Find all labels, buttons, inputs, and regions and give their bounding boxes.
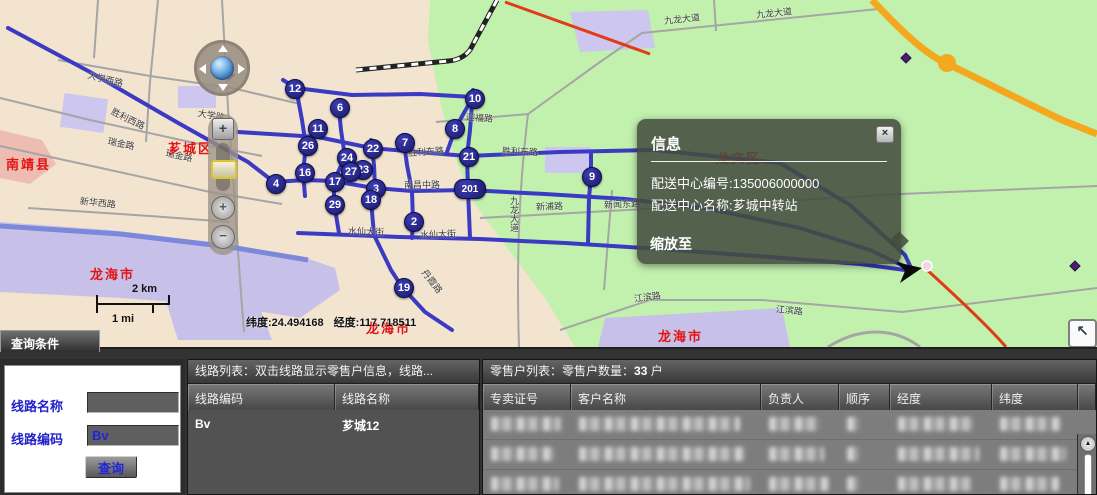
route-column-header: 线路名称 bbox=[335, 384, 479, 410]
redacted-cell bbox=[483, 410, 571, 439]
redacted-text-blob bbox=[847, 447, 859, 461]
delivery-center-name: 配送中心名称:芗城中转站 bbox=[651, 195, 798, 214]
retailer-column-header: 纬度 bbox=[992, 384, 1078, 410]
route-code-cell: Bv bbox=[188, 410, 335, 438]
app-window: 九龙大道九龙大道大学西路胜利西路大学路瑞金路瑞金路新华西路迎福路胜利东路胜利东路… bbox=[0, 0, 1097, 495]
redacted-text-blob bbox=[579, 477, 750, 491]
cursor-coordinates: 纬度:24.494168 经度:117.718511 bbox=[246, 314, 416, 330]
retailer-column-header: 顺序 bbox=[839, 384, 890, 410]
redacted-text-blob bbox=[491, 447, 554, 461]
query-form-section: 线路名称 线路编码 查询 bbox=[0, 359, 185, 495]
redacted-cell bbox=[571, 470, 761, 494]
redacted-text-blob bbox=[769, 447, 824, 461]
pan-east-button[interactable] bbox=[238, 64, 245, 74]
redacted-cell bbox=[839, 440, 890, 469]
route-column-header: 线路编码 bbox=[188, 384, 335, 410]
redacted-cell bbox=[839, 410, 890, 439]
redacted-text-blob bbox=[769, 477, 829, 491]
redacted-cell bbox=[890, 470, 992, 494]
bottom-panel: 线路名称 线路编码 查询 线路列表：双击线路显示零售户信息，线路... 线路编码… bbox=[0, 347, 1097, 495]
redacted-text-blob bbox=[898, 447, 979, 461]
redacted-text-blob bbox=[1000, 477, 1059, 491]
redacted-cell bbox=[761, 440, 839, 469]
redacted-cell bbox=[761, 470, 839, 494]
delivery-center-code: 配送中心编号:135006000000 bbox=[651, 173, 819, 192]
info-popup-title: 信息 bbox=[651, 133, 681, 154]
retailer-title-prefix: 零售户列表：零售户数量： bbox=[490, 364, 634, 378]
pan-south-button[interactable] bbox=[218, 84, 228, 91]
district-label: 芗城区 bbox=[168, 138, 213, 157]
scrollbar-thumb[interactable] bbox=[1084, 454, 1092, 494]
retailer-table-header: 专卖证号客户名称负责人顺序经度纬度 bbox=[483, 384, 1096, 410]
redacted-text-blob bbox=[898, 417, 974, 431]
retailer-column-header: 专卖证号 bbox=[483, 384, 571, 410]
route-stop-marker-2[interactable]: 2 bbox=[404, 212, 424, 232]
expand-arrow-button[interactable]: ↖ bbox=[1068, 319, 1097, 347]
map-canvas[interactable]: 九龙大道九龙大道大学西路胜利西路大学路瑞金路瑞金路新华西路迎福路胜利东路胜利东路… bbox=[0, 0, 1097, 347]
redacted-text-blob bbox=[1000, 447, 1066, 461]
route-table-body: Bv芗城12 bbox=[188, 410, 479, 494]
route-name-input[interactable] bbox=[87, 392, 179, 413]
road-label: 南昌中路 bbox=[404, 178, 440, 191]
zoom-slider-track[interactable] bbox=[216, 143, 230, 191]
route-stop-marker-4[interactable]: 4 bbox=[266, 174, 286, 194]
redacted-text-blob bbox=[847, 417, 859, 431]
road-label: 九龙大道 bbox=[508, 196, 521, 232]
retailer-title-suffix: 户 bbox=[647, 364, 662, 378]
route-stop-marker-12[interactable]: 12 bbox=[285, 79, 305, 99]
retailer-column-header: 客户名称 bbox=[571, 384, 761, 410]
pan-west-button[interactable] bbox=[199, 64, 206, 74]
district-label: 龙海市 bbox=[90, 264, 135, 283]
redacted-cell bbox=[890, 440, 992, 469]
route-stop-marker-8[interactable]: 8 bbox=[445, 119, 465, 139]
latitude-readout: 纬度:24.494168 bbox=[246, 314, 324, 330]
destination-node bbox=[922, 261, 932, 271]
retailer-list-section: 零售户列表：零售户数量：33 户 专卖证号客户名称负责人顺序经度纬度 ▲ bbox=[482, 359, 1097, 495]
route-stop-marker-18[interactable]: 18 bbox=[361, 190, 381, 210]
route-list-section: 线路列表：双击线路显示零售户信息，线路... 线路编码线路名称 Bv芗城12 bbox=[187, 359, 480, 495]
route-name-cell: 芗城12 bbox=[335, 410, 479, 438]
redacted-cell bbox=[571, 440, 761, 469]
longitude-readout: 经度:117.718511 bbox=[334, 314, 417, 330]
redacted-text-blob bbox=[847, 477, 859, 491]
route-stop-marker-9[interactable]: 9 bbox=[582, 167, 602, 187]
road-label: 水仙大街 bbox=[420, 227, 456, 241]
scrollbar[interactable]: ▲ bbox=[1077, 434, 1096, 494]
redacted-text-blob bbox=[491, 477, 559, 491]
route-row[interactable]: Bv芗城12 bbox=[188, 410, 479, 438]
redacted-cell bbox=[890, 410, 992, 439]
road-label: 江滨路 bbox=[775, 302, 803, 318]
route-stop-marker-10[interactable]: 10 bbox=[465, 89, 485, 109]
close-icon[interactable]: × bbox=[876, 126, 894, 143]
map-pan-control[interactable] bbox=[194, 40, 250, 96]
zoom-out-circle-button[interactable]: − bbox=[211, 225, 235, 249]
retailer-row-redacted[interactable] bbox=[483, 440, 1078, 470]
redacted-cell bbox=[992, 440, 1078, 469]
zoom-in-button[interactable]: + bbox=[212, 118, 234, 140]
redacted-cell bbox=[483, 470, 571, 494]
redacted-text-blob bbox=[491, 417, 561, 431]
redacted-text-blob bbox=[769, 417, 819, 431]
zoom-to-link[interactable]: 缩放至 bbox=[650, 234, 692, 254]
route-name-label: 线路名称 bbox=[11, 396, 63, 415]
redacted-text-blob bbox=[579, 417, 740, 431]
zoom-slider-handle[interactable] bbox=[211, 160, 237, 179]
route-stop-marker-7[interactable]: 7 bbox=[395, 133, 415, 153]
scale-km-label: 2 km bbox=[132, 283, 186, 295]
road-label: 水仙大街 bbox=[348, 224, 384, 238]
retailer-list-title: 零售户列表：零售户数量：33 户 bbox=[483, 360, 1096, 384]
district-label: 南靖县 bbox=[6, 154, 51, 173]
globe-icon[interactable] bbox=[210, 56, 234, 80]
scale-mi-label: 1 mi bbox=[112, 313, 186, 325]
scale-bar-graphic bbox=[96, 295, 170, 313]
road-label: 迎福路 bbox=[466, 110, 494, 125]
retailer-header-filler bbox=[1078, 384, 1096, 410]
route-stop-marker-22[interactable]: 22 bbox=[363, 139, 383, 159]
route-stop-marker-21[interactable]: 21 bbox=[459, 147, 479, 167]
redacted-cell bbox=[992, 470, 1078, 494]
route-stop-marker-201[interactable]: 201 bbox=[454, 179, 486, 199]
route-stop-marker-29[interactable]: 29 bbox=[325, 195, 345, 215]
route-list-title: 线路列表：双击线路显示零售户信息，线路... bbox=[188, 360, 479, 384]
route-stop-marker-6[interactable]: 6 bbox=[330, 98, 350, 118]
route-stop-marker-17[interactable]: 17 bbox=[325, 172, 345, 192]
redacted-text-blob bbox=[1000, 417, 1061, 431]
retailer-row-redacted[interactable] bbox=[483, 410, 1078, 440]
route-table-header: 线路编码线路名称 bbox=[188, 384, 479, 410]
zoom-in-circle-button[interactable]: + bbox=[211, 196, 235, 220]
retailer-table-body bbox=[483, 410, 1078, 494]
redacted-text-blob bbox=[579, 447, 745, 461]
retailer-row-redacted[interactable] bbox=[483, 470, 1078, 494]
pan-north-button[interactable] bbox=[218, 45, 228, 52]
road-label: 新闻东路 bbox=[604, 197, 640, 211]
redacted-cell bbox=[483, 440, 571, 469]
query-form-card: 线路名称 线路编码 查询 bbox=[4, 365, 181, 493]
map-zoom-control[interactable]: + + − bbox=[208, 114, 238, 255]
tab-query-conditions[interactable]: 查询条件 bbox=[0, 330, 100, 352]
route-code-label: 线路编码 bbox=[11, 429, 63, 448]
road-label: 胜利东路 bbox=[502, 144, 538, 158]
scroll-up-icon[interactable]: ▲ bbox=[1080, 436, 1096, 452]
district-label: 龙海市 bbox=[658, 326, 703, 345]
redacted-cell bbox=[761, 410, 839, 439]
route-stop-marker-26[interactable]: 26 bbox=[298, 136, 318, 156]
map-scale-bar: 2 km 1 mi bbox=[96, 283, 186, 325]
redacted-cell bbox=[992, 410, 1078, 439]
route-stop-marker-16[interactable]: 16 bbox=[295, 163, 315, 183]
info-popup-divider bbox=[651, 161, 887, 162]
search-button[interactable]: 查询 bbox=[85, 456, 137, 478]
retailer-column-header: 负责人 bbox=[761, 384, 839, 410]
road-label: 新浦路 bbox=[536, 199, 563, 213]
redacted-cell bbox=[571, 410, 761, 439]
route-stop-marker-19[interactable]: 19 bbox=[394, 278, 414, 298]
route-code-input[interactable] bbox=[87, 425, 179, 446]
retailer-column-header: 经度 bbox=[890, 384, 992, 410]
retailer-count: 33 bbox=[634, 364, 647, 378]
info-popup: × 信息 配送中心编号:135006000000 配送中心名称:芗城中转站 缩放… bbox=[637, 119, 901, 264]
redacted-cell bbox=[839, 470, 890, 494]
redacted-text-blob bbox=[898, 477, 972, 491]
